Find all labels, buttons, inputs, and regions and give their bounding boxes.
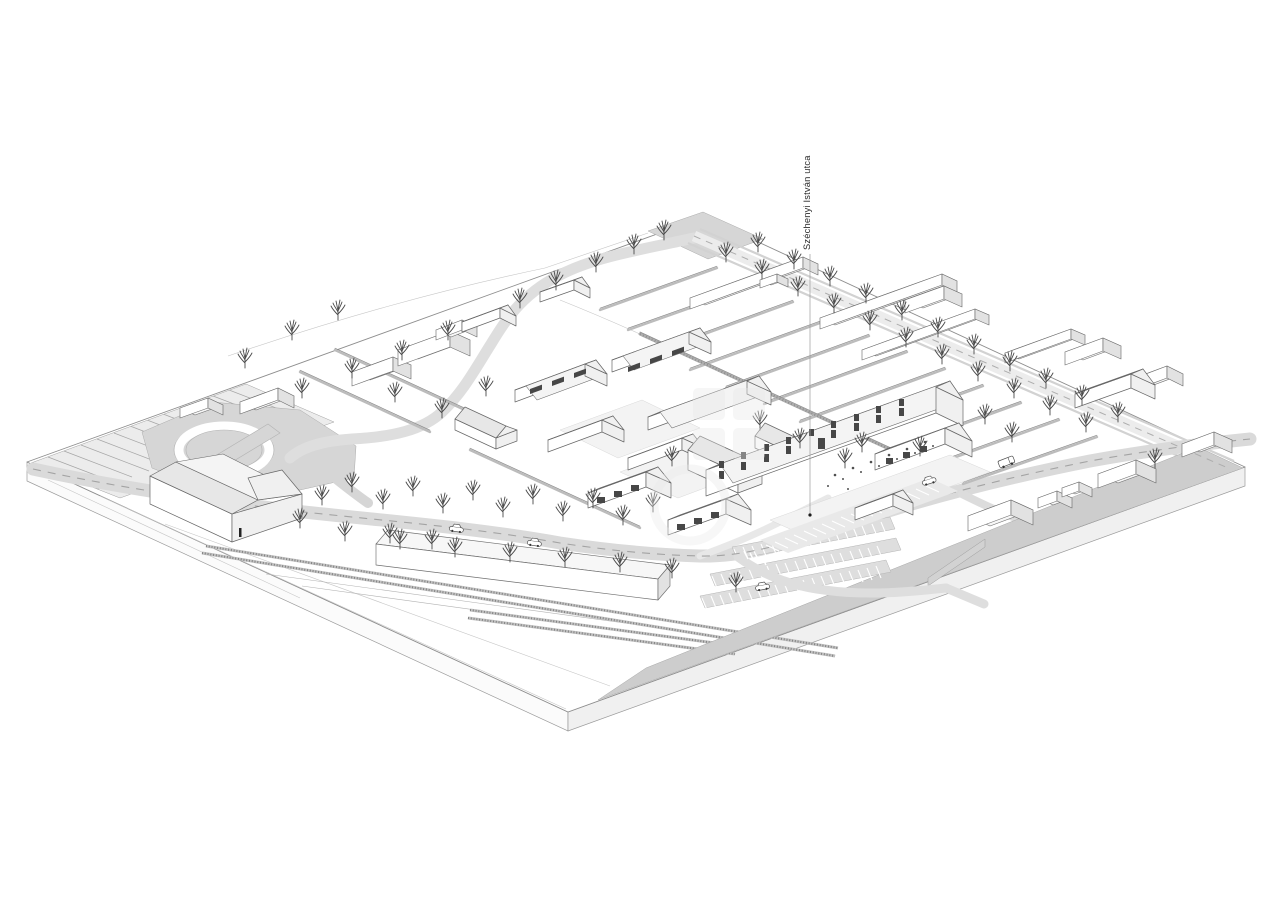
parking-exit: [946, 588, 984, 604]
leader-dot: [808, 513, 811, 516]
site-plan-canvas: Széchenyi István utca: [0, 0, 1280, 905]
axonometric-site-plan: Széchenyi István utca: [0, 0, 1280, 905]
street-label: Széchenyi István utca: [802, 155, 812, 250]
signal-post: [239, 528, 242, 537]
